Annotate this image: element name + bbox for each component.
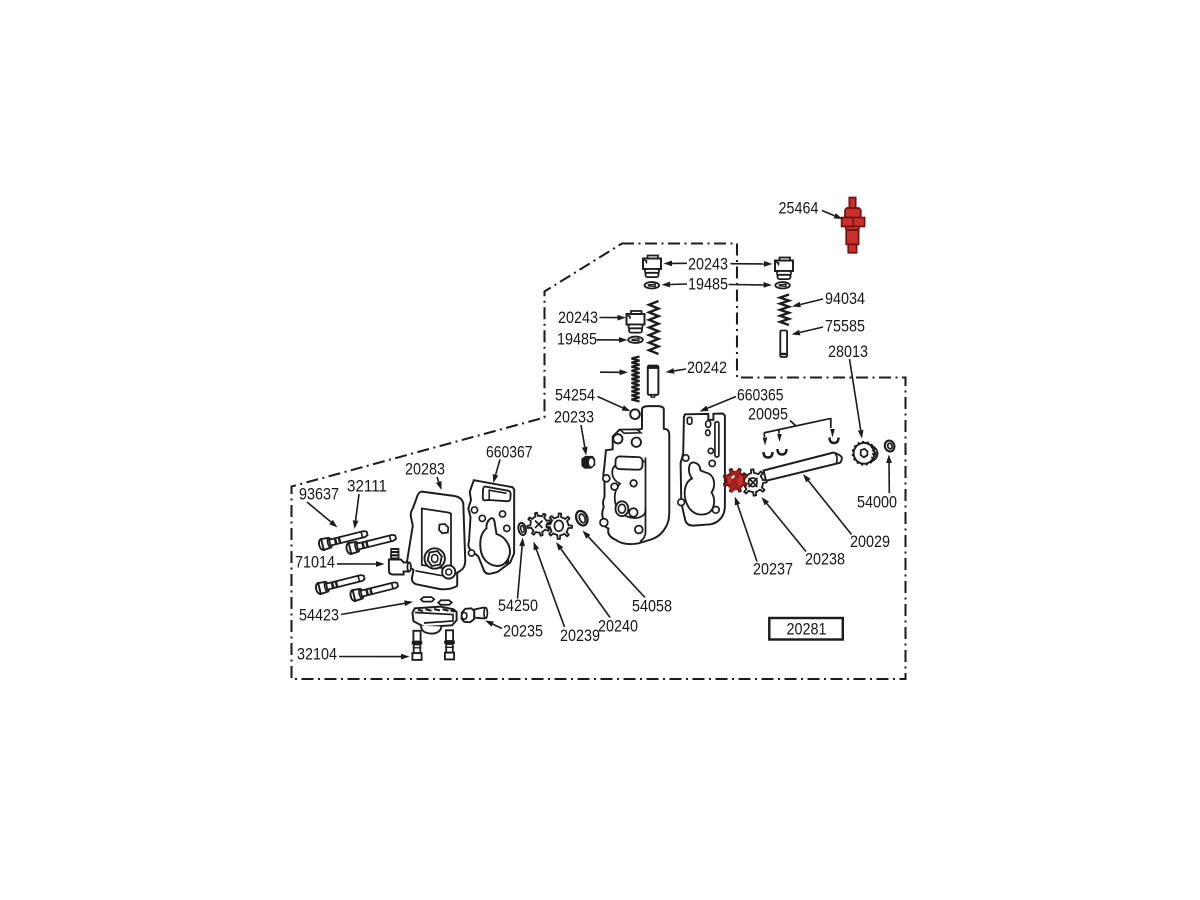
svg-text:54000: 54000 [857,494,897,512]
svg-text:32104: 32104 [297,646,337,664]
svg-text:54058: 54058 [632,598,672,616]
svg-text:54423: 54423 [299,607,339,625]
svg-text:28013: 28013 [828,343,868,361]
svg-text:20283: 20283 [405,461,445,479]
svg-text:20095: 20095 [748,406,788,424]
svg-text:71014: 71014 [295,554,335,572]
svg-text:94034: 94034 [825,290,865,308]
svg-text:75585: 75585 [825,318,865,336]
svg-text:54254: 54254 [555,387,595,405]
svg-text:25464: 25464 [779,200,819,218]
svg-text:20237: 20237 [753,561,793,579]
svg-text:20242: 20242 [687,359,727,377]
svg-text:32111: 32111 [347,478,387,496]
svg-text:20238: 20238 [805,551,845,569]
svg-text:19485: 19485 [557,331,597,349]
svg-text:20243: 20243 [558,309,598,327]
svg-text:54250: 54250 [498,597,538,615]
svg-text:19485: 19485 [688,276,728,294]
svg-text:20235: 20235 [503,623,543,641]
svg-text:20240: 20240 [598,618,638,636]
svg-text:20239: 20239 [560,627,600,645]
svg-text:20243: 20243 [688,256,728,274]
svg-text:660367: 660367 [486,444,533,462]
svg-text:20233: 20233 [554,409,594,427]
svg-text:20281: 20281 [787,621,827,639]
svg-text:93637: 93637 [299,486,339,504]
svg-text:660365: 660365 [737,387,784,405]
svg-text:20029: 20029 [850,533,890,551]
